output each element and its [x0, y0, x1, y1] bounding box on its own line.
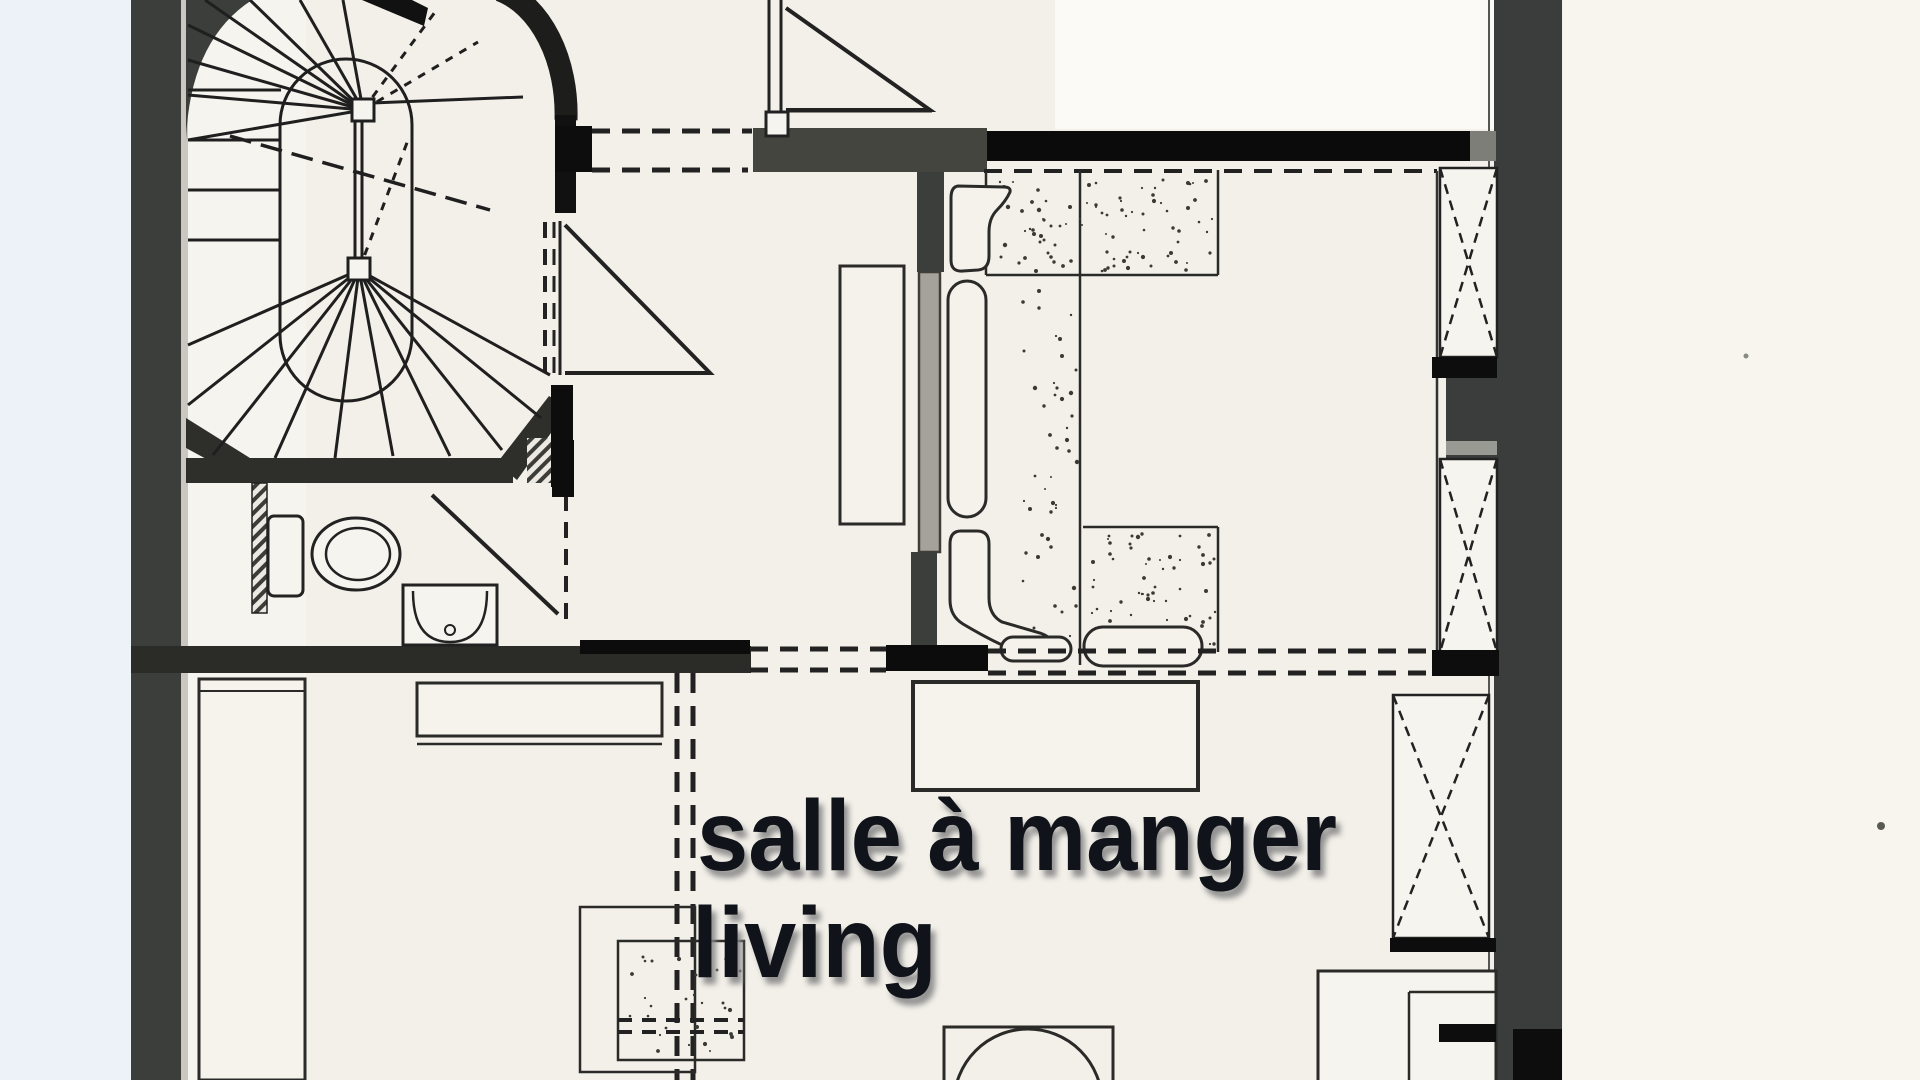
svg-text:salle à manger: salle à manger	[697, 780, 1337, 892]
svg-text:living: living	[692, 887, 937, 999]
